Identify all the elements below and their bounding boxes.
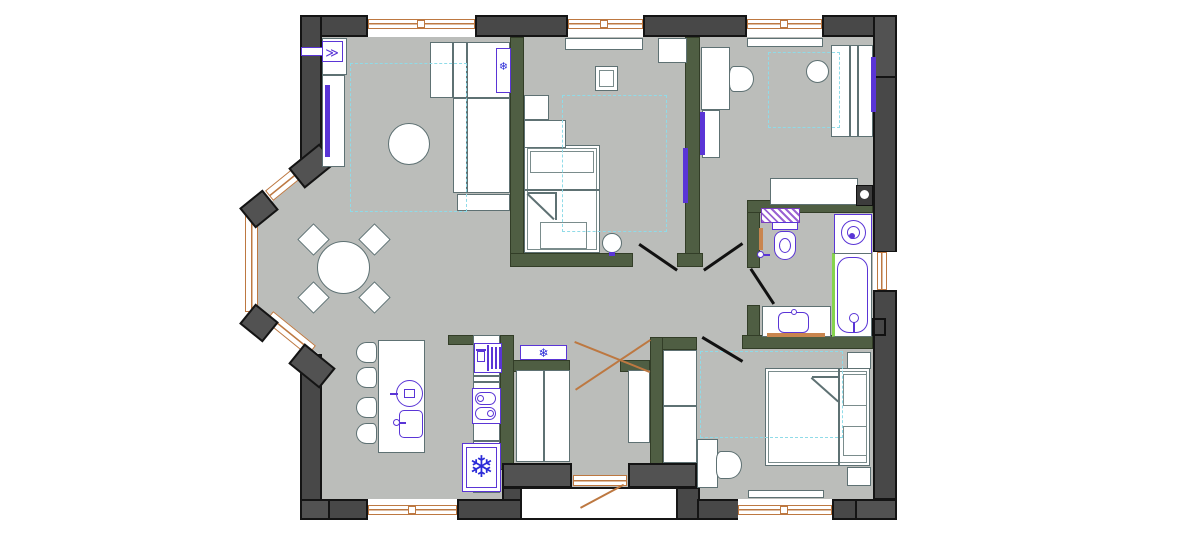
office-dark-unit-basin	[860, 190, 869, 199]
counter-divider-1	[473, 375, 500, 377]
wall-top-2	[475, 15, 568, 37]
wall-bedroom1-right	[685, 37, 700, 254]
bathtub-drain-stem	[853, 322, 855, 333]
wall-bottom-2	[457, 499, 522, 520]
island-chair-1	[356, 342, 377, 363]
hall-closet-left-1	[516, 370, 544, 462]
window-bottom-2-mullion	[780, 506, 788, 514]
bedroom1-pouf-mark	[609, 252, 615, 256]
office-window-sill	[747, 38, 823, 47]
bedroom1-stool-inner	[599, 70, 614, 87]
stove-pot-lid	[476, 349, 486, 351]
window-bottom-1-mullion	[408, 506, 416, 514]
entry-block-right	[628, 463, 697, 488]
kitchen-sink-dot-2	[487, 410, 494, 417]
ac-livingroom-snowflake-icon: ❄	[496, 58, 511, 76]
wall-bedroom1-left	[510, 37, 524, 267]
office-sofa-line-1	[849, 45, 851, 137]
ceiling-zone-bedroom1	[562, 95, 667, 232]
island-chair-3	[356, 397, 377, 418]
entry-patch-left	[502, 487, 522, 501]
island-hob-pot	[404, 389, 415, 398]
bath-tap-line	[764, 254, 770, 256]
window-top-2-mullion	[600, 20, 608, 28]
corner-block-tr	[873, 15, 897, 78]
bed2-pillow-1	[843, 374, 867, 406]
ceiling-zone-bedroom2	[700, 351, 843, 438]
office-sofa-line-2	[857, 45, 859, 137]
island-hob-handle	[390, 393, 398, 395]
window-top-3-mullion	[780, 20, 788, 28]
bedroom1-wardrobe-2	[524, 120, 566, 148]
office-desk	[701, 47, 730, 110]
bath-towel-rail	[759, 228, 763, 250]
washing-machine-dot	[849, 233, 855, 239]
stove-wave-3	[499, 347, 501, 369]
hall-closet-right	[628, 370, 650, 443]
wall-bottom-4	[697, 499, 740, 520]
floor-plan-canvas: ≫❄❄❄	[0, 0, 1200, 536]
island-chair-2	[356, 367, 377, 388]
toilet-tank	[772, 222, 798, 230]
counter-divider-2	[473, 381, 500, 383]
bedroom2-wardrobe-2	[663, 406, 697, 463]
island-sink	[399, 410, 423, 438]
bedroom2-chair	[716, 451, 742, 479]
bath-vanity-mat	[767, 333, 825, 337]
fridge-snowflake-icon: ❄	[462, 448, 501, 488]
stove-divider	[487, 345, 489, 371]
office-chair	[729, 66, 754, 92]
window-right-frame	[877, 252, 887, 290]
bath-shelf-hatched	[761, 208, 800, 223]
window-top-1-mullion	[417, 20, 425, 28]
wall-left-1	[300, 15, 322, 161]
entry-block-left	[502, 463, 572, 488]
hall-closet-left-2	[544, 370, 570, 462]
office-dressing-desk	[770, 178, 858, 205]
wall-hall-top-mid	[677, 253, 703, 267]
bath-tap	[757, 251, 764, 258]
bath-vanity-faucet	[791, 309, 797, 315]
entry-porch	[520, 487, 678, 520]
stove-pot	[477, 351, 485, 362]
corner-block-br	[855, 499, 897, 520]
wall-kitchen-right	[500, 335, 514, 470]
toilet-bowl-inner	[779, 238, 791, 253]
tv-livingroom	[325, 85, 330, 157]
island-chair-4	[356, 423, 377, 444]
bedroom1-cabinet	[658, 38, 687, 63]
bedroom1-wardrobe-1	[524, 95, 549, 120]
bedroom1-window-shelf	[565, 38, 643, 50]
front-door-frame	[573, 475, 627, 486]
ac-hall-snowflake-icon: ❄	[520, 345, 567, 360]
bedroom2-dresser	[748, 490, 824, 498]
bedroom2-desk	[697, 439, 718, 488]
bed2-pillow-2	[843, 426, 867, 456]
vent-arrows-icon: ≫	[321, 42, 343, 62]
office-tv	[700, 112, 705, 155]
bedroom1-pouf	[602, 233, 622, 253]
wall-top-3	[643, 15, 747, 37]
kitchen-sink-dot-1	[477, 395, 484, 402]
counter-divider-3	[473, 440, 500, 442]
corner-block-bl	[300, 499, 330, 520]
bed1-fold-top	[528, 192, 556, 194]
bay-window-mid	[245, 215, 258, 312]
stove-wave-2	[495, 347, 497, 369]
bedroom2-wardrobe-1	[663, 350, 697, 406]
wall-bath-bottom	[742, 335, 873, 349]
island-faucet-line	[399, 422, 406, 424]
dining-table	[317, 241, 370, 294]
ceiling-zone-office	[768, 52, 840, 128]
bedroom2-nightstand-s	[847, 467, 871, 486]
bedroom2-nightstand-n	[847, 352, 871, 369]
wall-vent-duct	[872, 318, 886, 336]
bedroom1-tv	[683, 148, 688, 203]
stove-wave-1	[491, 347, 493, 369]
office-radiator	[871, 57, 876, 112]
bath-vanity-sink	[778, 312, 809, 333]
ceiling-zone-livingroom	[350, 63, 467, 212]
wall-bedroom2-left	[650, 337, 663, 483]
wall-right-1	[873, 76, 897, 253]
bed1-fold-side	[555, 192, 557, 220]
